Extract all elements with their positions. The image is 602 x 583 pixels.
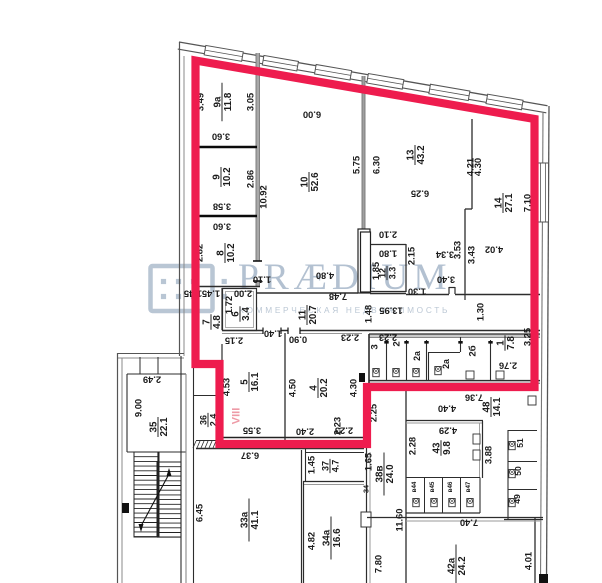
svg-text:20.2: 20.2 xyxy=(319,378,330,398)
svg-text:3.05: 3.05 xyxy=(244,93,255,111)
svg-text:4.01: 4.01 xyxy=(522,552,533,570)
svg-text:2.76: 2.76 xyxy=(499,361,517,372)
svg-text:2а: 2а xyxy=(412,351,422,361)
svg-text:КОММЕРЧЕСКАЯ НЕДВИЖИМОСТЬ: КОММЕРЧЕСКАЯ НЕДВИЖИМОСТЬ xyxy=(239,305,450,315)
svg-text:4.30: 4.30 xyxy=(347,379,358,397)
svg-text:4.02: 4.02 xyxy=(485,245,503,256)
svg-text:1.40: 1.40 xyxy=(264,329,282,340)
svg-text:7.48: 7.48 xyxy=(329,292,347,303)
svg-text:2.23: 2.23 xyxy=(379,333,397,344)
svg-text:20.7: 20.7 xyxy=(308,305,319,325)
svg-text:3.4: 3.4 xyxy=(241,307,252,321)
svg-text:3.88: 3.88 xyxy=(482,446,493,464)
svg-text:2.15: 2.15 xyxy=(225,336,243,347)
svg-text:2.10: 2.10 xyxy=(379,230,397,241)
svg-text:4.30: 4.30 xyxy=(472,158,483,176)
svg-text:9.8: 9.8 xyxy=(442,441,453,455)
svg-text:3.58: 3.58 xyxy=(213,202,231,213)
svg-text:в44: в44 xyxy=(411,481,418,492)
svg-text:11.8: 11.8 xyxy=(223,92,234,111)
svg-text:5.75: 5.75 xyxy=(350,156,361,174)
svg-text:50: 50 xyxy=(513,466,523,476)
svg-text:1.45: 1.45 xyxy=(305,456,316,474)
svg-text:3.60: 3.60 xyxy=(213,222,231,233)
svg-text:22.1: 22.1 xyxy=(159,417,170,437)
svg-text:1.45: 1.45 xyxy=(202,289,220,300)
svg-text:14.1: 14.1 xyxy=(492,397,503,417)
svg-text:6.00: 6.00 xyxy=(303,110,321,121)
svg-text:1.72: 1.72 xyxy=(223,296,234,314)
svg-text:24.2: 24.2 xyxy=(457,556,468,576)
svg-text:3: 3 xyxy=(370,344,381,349)
svg-text:6.30: 6.30 xyxy=(370,156,381,174)
svg-text:1.30: 1.30 xyxy=(408,287,426,298)
svg-text:1.80: 1.80 xyxy=(379,249,397,260)
svg-text:3.40: 3.40 xyxy=(437,275,455,286)
svg-text:34: 34 xyxy=(362,485,371,493)
svg-text:4.80: 4.80 xyxy=(316,271,334,282)
svg-text:3.43: 3.43 xyxy=(465,246,476,264)
svg-text:4.29: 4.29 xyxy=(439,426,457,437)
svg-text:2.40: 2.40 xyxy=(296,427,314,438)
svg-text:7.8: 7.8 xyxy=(506,336,517,350)
svg-text:4.82: 4.82 xyxy=(305,532,316,550)
svg-text:1.48: 1.48 xyxy=(362,305,373,323)
svg-text:4.40: 4.40 xyxy=(438,404,456,415)
svg-text:16.6: 16.6 xyxy=(332,528,343,548)
svg-text:10.2: 10.2 xyxy=(222,167,233,187)
svg-text:41.1: 41.1 xyxy=(250,510,261,530)
svg-text:36: 36 xyxy=(198,415,208,425)
svg-text:3.34: 3.34 xyxy=(435,250,454,261)
svg-text:2а: 2а xyxy=(441,359,451,369)
svg-text:в46: в46 xyxy=(447,481,454,492)
svg-text:2.28: 2.28 xyxy=(406,437,417,455)
svg-text:4.7: 4.7 xyxy=(330,460,340,473)
svg-text:49: 49 xyxy=(512,494,522,504)
svg-text:2.86: 2.86 xyxy=(244,170,255,188)
svg-text:3.55: 3.55 xyxy=(243,426,261,437)
svg-text:4.8: 4.8 xyxy=(212,315,223,329)
svg-text:37: 37 xyxy=(320,461,330,471)
svg-text:11.60: 11.60 xyxy=(393,509,404,532)
svg-text:2.49: 2.49 xyxy=(143,375,161,386)
svg-text:2б: 2б xyxy=(468,345,479,356)
svg-text:24.0: 24.0 xyxy=(385,464,396,484)
svg-text:1.65: 1.65 xyxy=(362,453,373,471)
svg-text:2.00: 2.00 xyxy=(234,289,252,300)
svg-text:0.90: 0.90 xyxy=(289,335,307,346)
svg-text:6.45: 6.45 xyxy=(193,504,204,522)
svg-text:13.95: 13.95 xyxy=(379,306,402,317)
svg-text:4.50: 4.50 xyxy=(286,379,297,397)
svg-text:1.85: 1.85 xyxy=(370,262,381,280)
svg-text:в45: в45 xyxy=(429,481,436,492)
svg-text:7.40: 7.40 xyxy=(460,518,478,529)
svg-text:6.25: 6.25 xyxy=(411,189,429,200)
svg-text:3.60: 3.60 xyxy=(212,132,230,143)
svg-text:6.37: 6.37 xyxy=(241,451,259,462)
svg-text:7.80: 7.80 xyxy=(372,555,383,573)
svg-text:10.2: 10.2 xyxy=(226,243,237,263)
svg-text:2.23: 2.23 xyxy=(335,426,353,437)
svg-text:2.15: 2.15 xyxy=(405,247,416,265)
svg-text:7.36: 7.36 xyxy=(465,393,483,404)
svg-text:43.2: 43.2 xyxy=(416,145,427,165)
svg-text:51: 51 xyxy=(515,438,525,448)
svg-text:VIII: VIII xyxy=(231,408,243,425)
svg-text:52.6: 52.6 xyxy=(310,172,321,192)
svg-text:9.00: 9.00 xyxy=(132,399,143,417)
svg-text:2.23: 2.23 xyxy=(341,333,359,344)
svg-text:16.1: 16.1 xyxy=(250,372,261,392)
svg-text:27.1: 27.1 xyxy=(504,193,515,213)
svg-text:10.92: 10.92 xyxy=(257,185,268,208)
svg-text:в47: в47 xyxy=(465,481,472,492)
svg-text:3.3: 3.3 xyxy=(387,267,397,280)
svg-text:1.10: 1.10 xyxy=(253,275,271,286)
svg-text:1.30: 1.30 xyxy=(474,303,485,321)
